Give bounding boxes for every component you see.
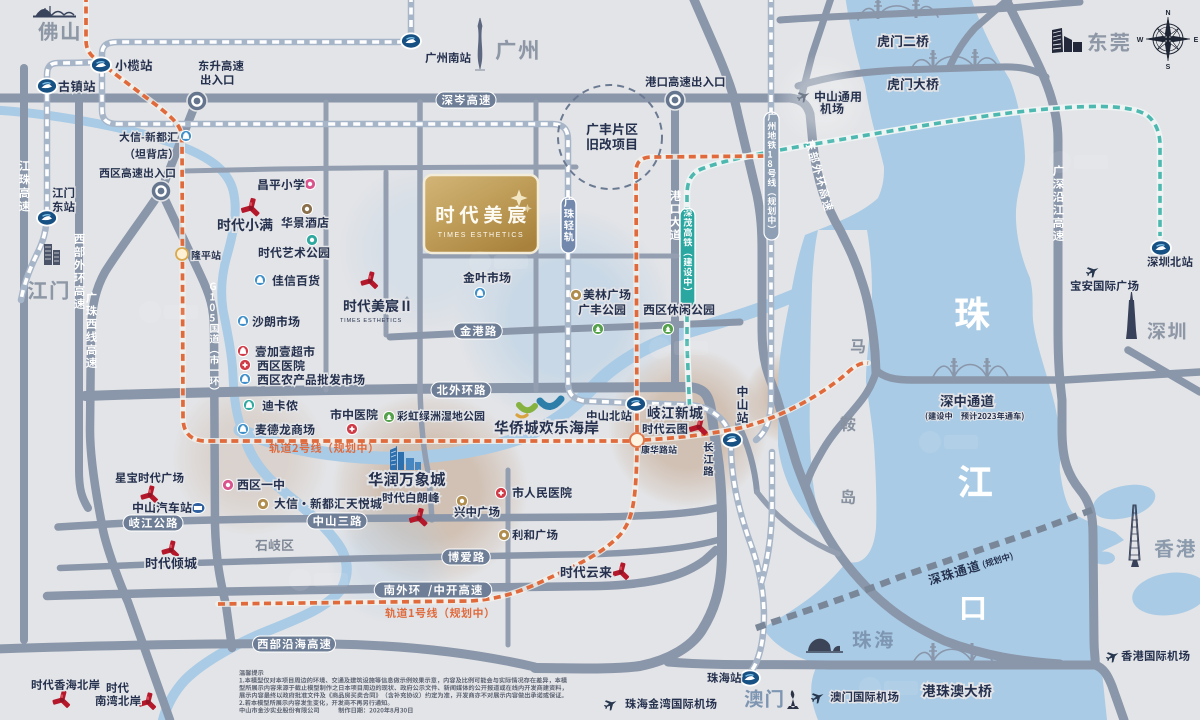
svg-text:N: N — [1165, 10, 1170, 17]
svg-text:TIMES ESTHETICS: TIMES ESTHETICS — [438, 232, 525, 239]
svg-text:E: E — [1194, 37, 1199, 44]
svg-text:S: S — [1166, 64, 1171, 71]
svg-text:W: W — [1137, 37, 1144, 44]
svg-text:TIMES ESTHETICS: TIMES ESTHETICS — [340, 318, 402, 324]
